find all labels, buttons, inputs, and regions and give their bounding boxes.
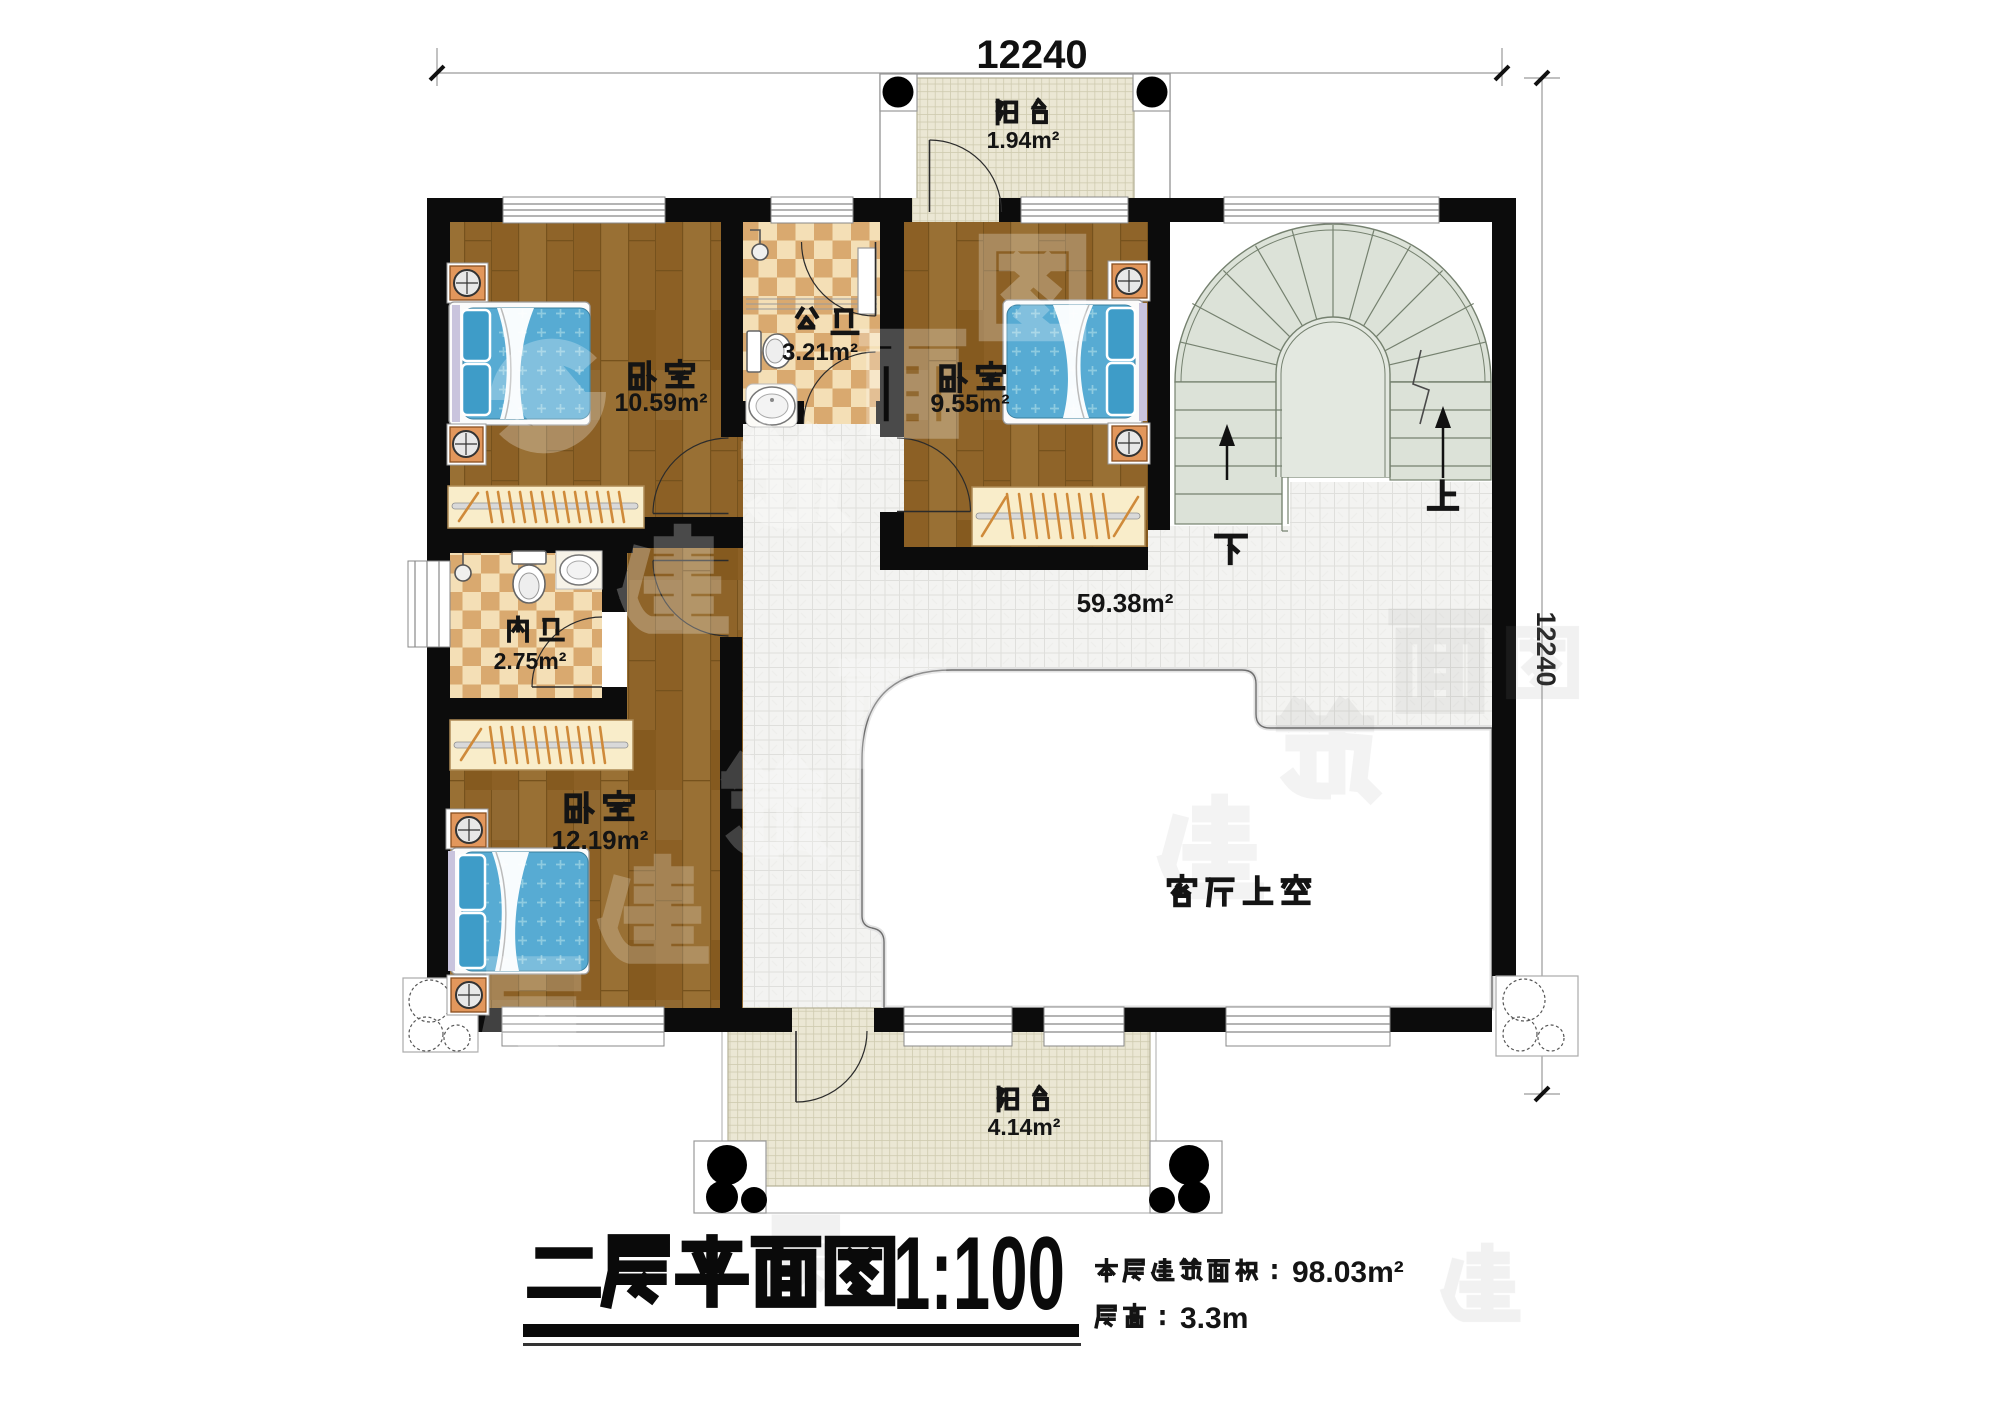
svg-text:4.14m²: 4.14m² (988, 1114, 1061, 1140)
svg-text:9.55m²: 9.55m² (930, 390, 1009, 418)
svg-text:2.75m²: 2.75m² (494, 648, 567, 674)
svg-text:1.94m²: 1.94m² (987, 127, 1060, 153)
svg-text:12240: 12240 (976, 33, 1087, 77)
svg-text:3.3m: 3.3m (1180, 1302, 1248, 1335)
svg-text:1:100: 1:100 (893, 1216, 1065, 1332)
svg-text:3.21m²: 3.21m² (782, 339, 858, 366)
svg-text:59.38m²: 59.38m² (1077, 588, 1174, 618)
svg-text:10.59m²: 10.59m² (614, 389, 707, 417)
svg-text:12.19m²: 12.19m² (552, 825, 649, 855)
svg-text:98.03m²: 98.03m² (1292, 1256, 1404, 1289)
